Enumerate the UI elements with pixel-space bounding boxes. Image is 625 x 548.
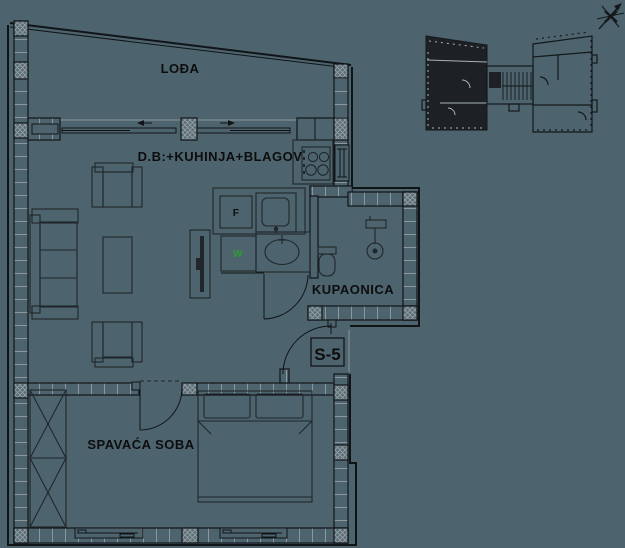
- floor-plan-svg: F W: [0, 0, 625, 548]
- wall-bath-right: [403, 192, 417, 320]
- key-plan-unit-highlight: [422, 36, 487, 130]
- wall-bedroom-top-west: [28, 383, 139, 395]
- loggia-slant-outer: [10, 23, 351, 65]
- floor-plan-page: F W: [0, 0, 625, 548]
- outline-left-bottom: [8, 25, 356, 545]
- bathroom-door: [221, 273, 308, 319]
- sliding-door-panels: [62, 128, 290, 133]
- pier: [403, 192, 417, 206]
- wall-kitchen-bath: [310, 186, 352, 197]
- burner: [308, 152, 317, 161]
- tv-unit: [190, 230, 210, 298]
- slide-arrow-left-icon: [137, 120, 152, 126]
- loggia-sliding-wall: [28, 118, 348, 140]
- unit-label: S-5: [314, 345, 340, 364]
- door-jamb: [132, 382, 140, 390]
- unit-label-box: S-5: [311, 338, 344, 366]
- wall-left: [14, 21, 28, 543]
- bedroom-window-right: [220, 528, 287, 538]
- burner: [306, 165, 316, 175]
- washer-label: W: [233, 249, 243, 260]
- bath-nook: W: [221, 232, 310, 272]
- kitchen-island: [213, 188, 305, 234]
- shower: [366, 216, 386, 259]
- bedroom-door: [140, 381, 182, 430]
- pier: [403, 306, 417, 320]
- fridge: F: [220, 196, 252, 228]
- wall-bedroom-top-east: [197, 383, 348, 395]
- room-label-bedroom: SPAVAĆA SOBA: [87, 437, 194, 452]
- bedroom: [30, 390, 312, 527]
- pier: [14, 62, 28, 79]
- slide-pocket-inner: [32, 124, 58, 134]
- pier: [334, 118, 348, 140]
- pier: [14, 528, 28, 543]
- key-plan-stairwell: [487, 66, 533, 111]
- key-plan: [422, 32, 597, 132]
- living-room: [30, 163, 210, 367]
- pier: [334, 64, 348, 78]
- burner: [319, 152, 328, 161]
- bathroom: [318, 216, 386, 276]
- wall-hall-bath: [310, 196, 318, 278]
- pillow: [256, 394, 303, 418]
- bedroom-window-left: [75, 528, 143, 538]
- kitchen-sink: [256, 193, 296, 233]
- fridge-label: F: [233, 208, 240, 219]
- slide-arrow-right-icon: [220, 120, 235, 126]
- coffee-table: [103, 237, 132, 293]
- stove: [302, 147, 330, 180]
- toilet: [318, 247, 336, 276]
- tv-screen: [200, 236, 204, 292]
- pier: [14, 383, 28, 398]
- pier: [182, 528, 198, 543]
- kitchen-window: [335, 145, 349, 181]
- pier: [14, 123, 28, 138]
- armchair-top: [92, 163, 142, 207]
- pier: [334, 385, 348, 400]
- wall-bath-bottom: [308, 306, 417, 320]
- key-plan-right-wing: [533, 32, 597, 132]
- room-label-bathroom: KUPAONICA: [312, 282, 394, 297]
- washbasin: [256, 232, 310, 272]
- pillow: [204, 394, 250, 418]
- north-arrow-icon: [597, 3, 624, 29]
- pier: [14, 21, 28, 36]
- sofa: [30, 209, 78, 319]
- room-label-loggia: LOĐA: [161, 61, 200, 76]
- burner: [318, 165, 328, 175]
- armchair-bottom: [92, 322, 142, 367]
- wardrobe: [30, 390, 66, 527]
- pier: [308, 306, 322, 320]
- pier: [181, 118, 197, 140]
- doors: [140, 273, 331, 430]
- washing-machine: W: [221, 236, 256, 271]
- pier: [182, 383, 197, 395]
- bed: [198, 391, 312, 502]
- wall-bottom: [14, 528, 348, 543]
- pier: [334, 528, 348, 543]
- pier: [334, 445, 348, 460]
- room-label-living-kitchen-dining: D.B:+KUHINJA+BLAGOV: [138, 149, 303, 164]
- entry-jamb: [280, 369, 289, 383]
